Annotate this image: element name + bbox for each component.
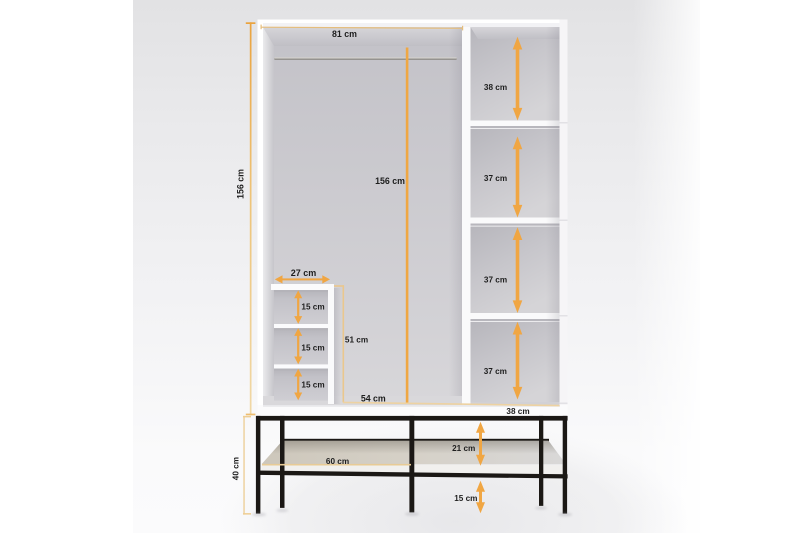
svg-text:40 cm: 40 cm [232,457,241,480]
svg-text:37 cm: 37 cm [484,367,507,376]
svg-text:38 cm: 38 cm [506,407,529,416]
svg-text:37 cm: 37 cm [484,174,507,183]
svg-text:21 cm: 21 cm [452,444,475,453]
svg-text:156 cm: 156 cm [375,176,405,186]
svg-text:54 cm: 54 cm [361,394,386,404]
svg-text:51 cm: 51 cm [345,336,368,345]
svg-text:15 cm: 15 cm [454,494,477,503]
svg-text:60 cm: 60 cm [326,457,349,466]
svg-text:15 cm: 15 cm [301,380,324,389]
svg-text:15 cm: 15 cm [301,302,324,311]
svg-text:37 cm: 37 cm [484,275,507,284]
svg-text:27 cm: 27 cm [291,268,317,278]
svg-text:15 cm: 15 cm [301,344,324,353]
svg-text:81 cm: 81 cm [332,29,357,39]
svg-text:156 cm: 156 cm [236,169,246,199]
svg-text:38 cm: 38 cm [484,83,507,92]
